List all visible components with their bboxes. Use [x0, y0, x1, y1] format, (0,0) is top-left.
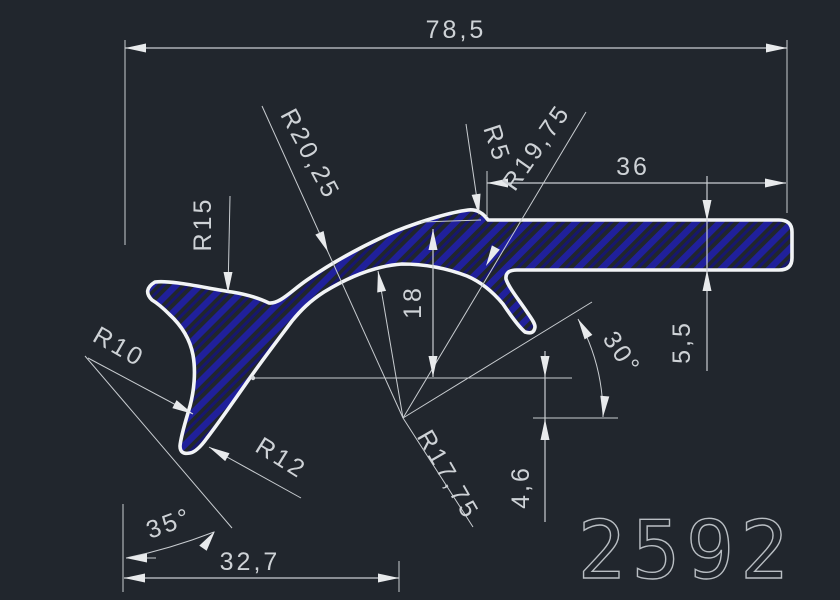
dim-r10-label: R10: [88, 321, 150, 373]
arrow-36-right: [765, 179, 786, 188]
arrow-30deg-upper: [574, 317, 592, 340]
dim-r20-25-label: R20,25: [275, 104, 346, 204]
dim-arch-height-label: 18: [399, 285, 427, 319]
dim-left-length-label: 32,7: [220, 548, 281, 576]
dim-hook-angle-label: 30°: [597, 326, 646, 380]
arrow-r12: [207, 443, 230, 461]
arrow-r17-75: [374, 270, 387, 292]
ref-line-dot: [251, 376, 255, 380]
dim-total-width-label: 78,5: [426, 16, 487, 44]
arrow-32-7-left: [124, 574, 145, 583]
arrow-5-5-bottom: [703, 270, 712, 291]
dim-r17-75-label: R17,75: [411, 425, 485, 524]
dim-bar-length-label: 36: [616, 153, 650, 181]
arrow-78-5-left: [125, 44, 146, 53]
arrow-35deg-right: [199, 528, 218, 550]
arrow-32-7-right: [378, 574, 399, 583]
arrow-78-5-right: [766, 44, 787, 53]
arrow-30deg-lower: [599, 396, 610, 418]
arrow-4-6-bottom: [541, 419, 550, 440]
arrow-35deg-left: [126, 554, 147, 563]
dim-leg-angle-label: 35°: [142, 502, 196, 544]
dim-r12-label: R12: [251, 432, 312, 485]
arrow-4-6-top: [541, 356, 550, 377]
arrow-5-5-top: [703, 200, 712, 221]
part-number-label: 2592: [578, 504, 795, 597]
dim-r15-label: R15: [189, 197, 217, 252]
cad-drawing-canvas[interactable]: 78,5 36 R5 R19,75 R20,25 R15 18 5,5 4,6 …: [0, 0, 840, 600]
dim-bar-thickness-label: 5,5: [668, 320, 696, 364]
dim-vertex-offset-label: 4,6: [507, 465, 535, 509]
arrow-r20-25: [315, 231, 332, 254]
profile-drawing-svg: 78,5 36 R5 R19,75 R20,25 R15 18 5,5 4,6 …: [0, 0, 840, 600]
